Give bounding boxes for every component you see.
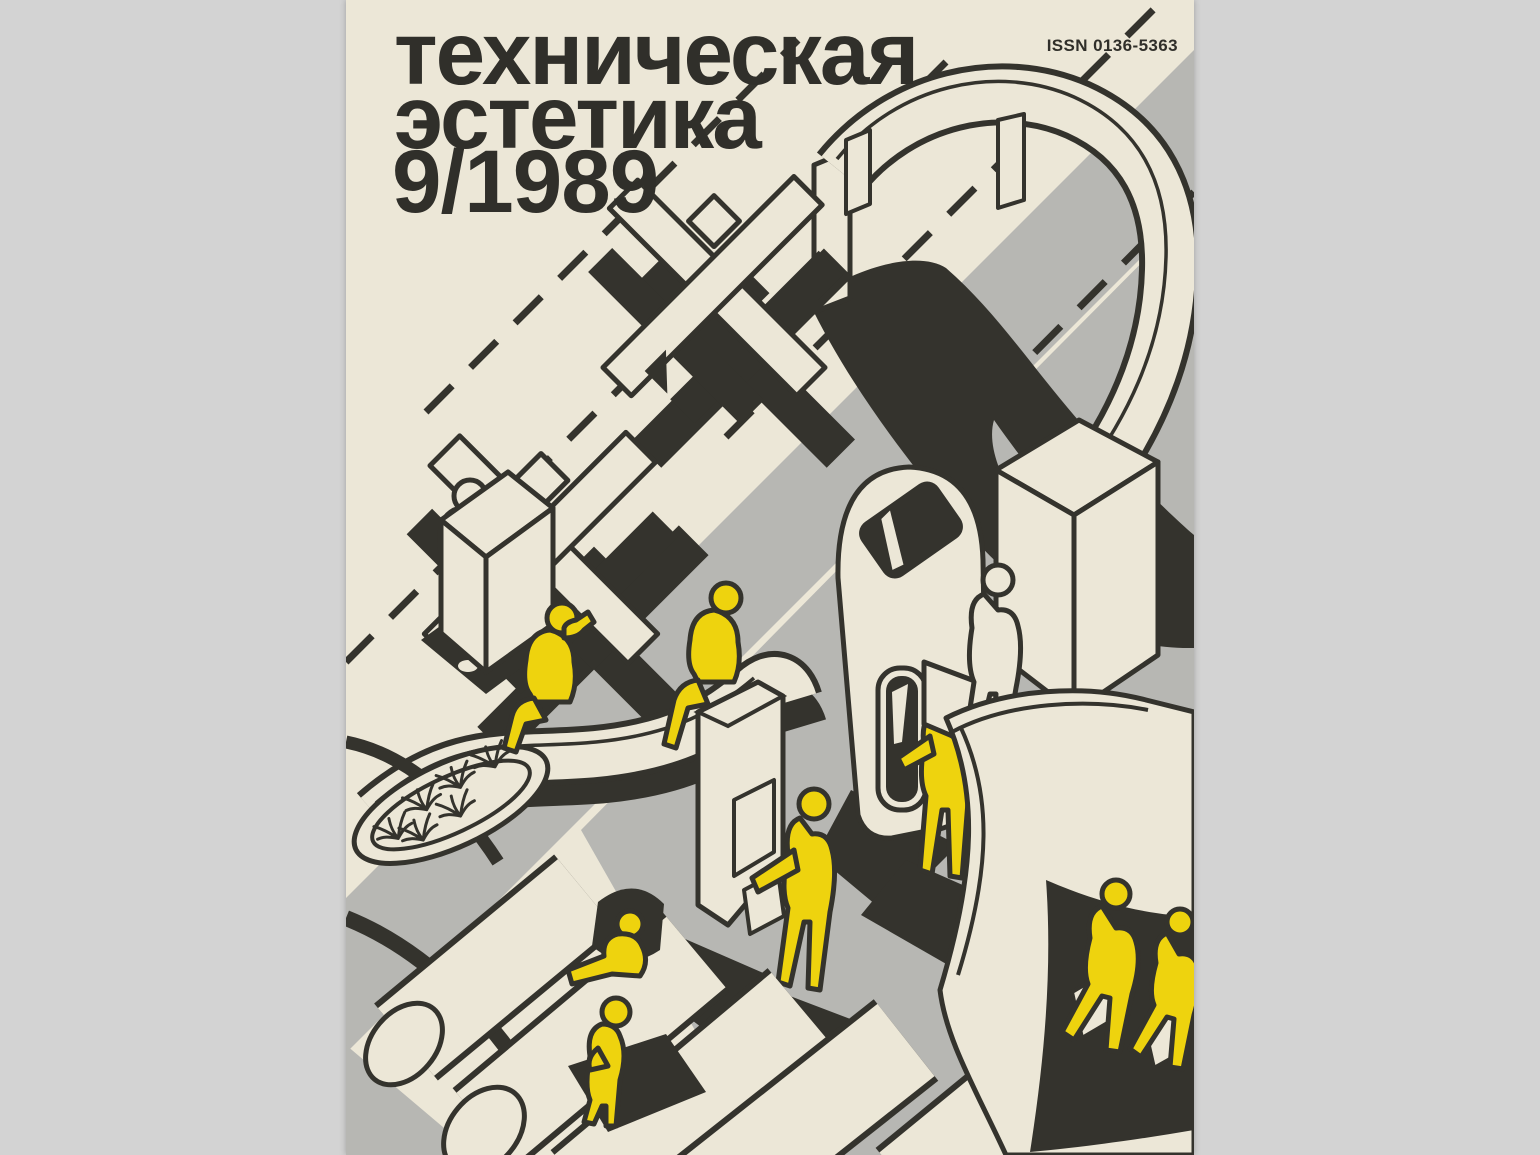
phone-hood <box>878 668 926 810</box>
walkway-post-left <box>846 130 870 214</box>
curved-tower <box>940 691 1194 1155</box>
issn-label: ISSN 0136-5363 <box>986 36 1178 56</box>
magazine-cover: техническая эстетика 9/1989 ISSN 0136-53… <box>346 0 1194 1155</box>
walkway-post-right <box>998 114 1024 208</box>
issue-number: 9/1989 <box>392 137 658 226</box>
